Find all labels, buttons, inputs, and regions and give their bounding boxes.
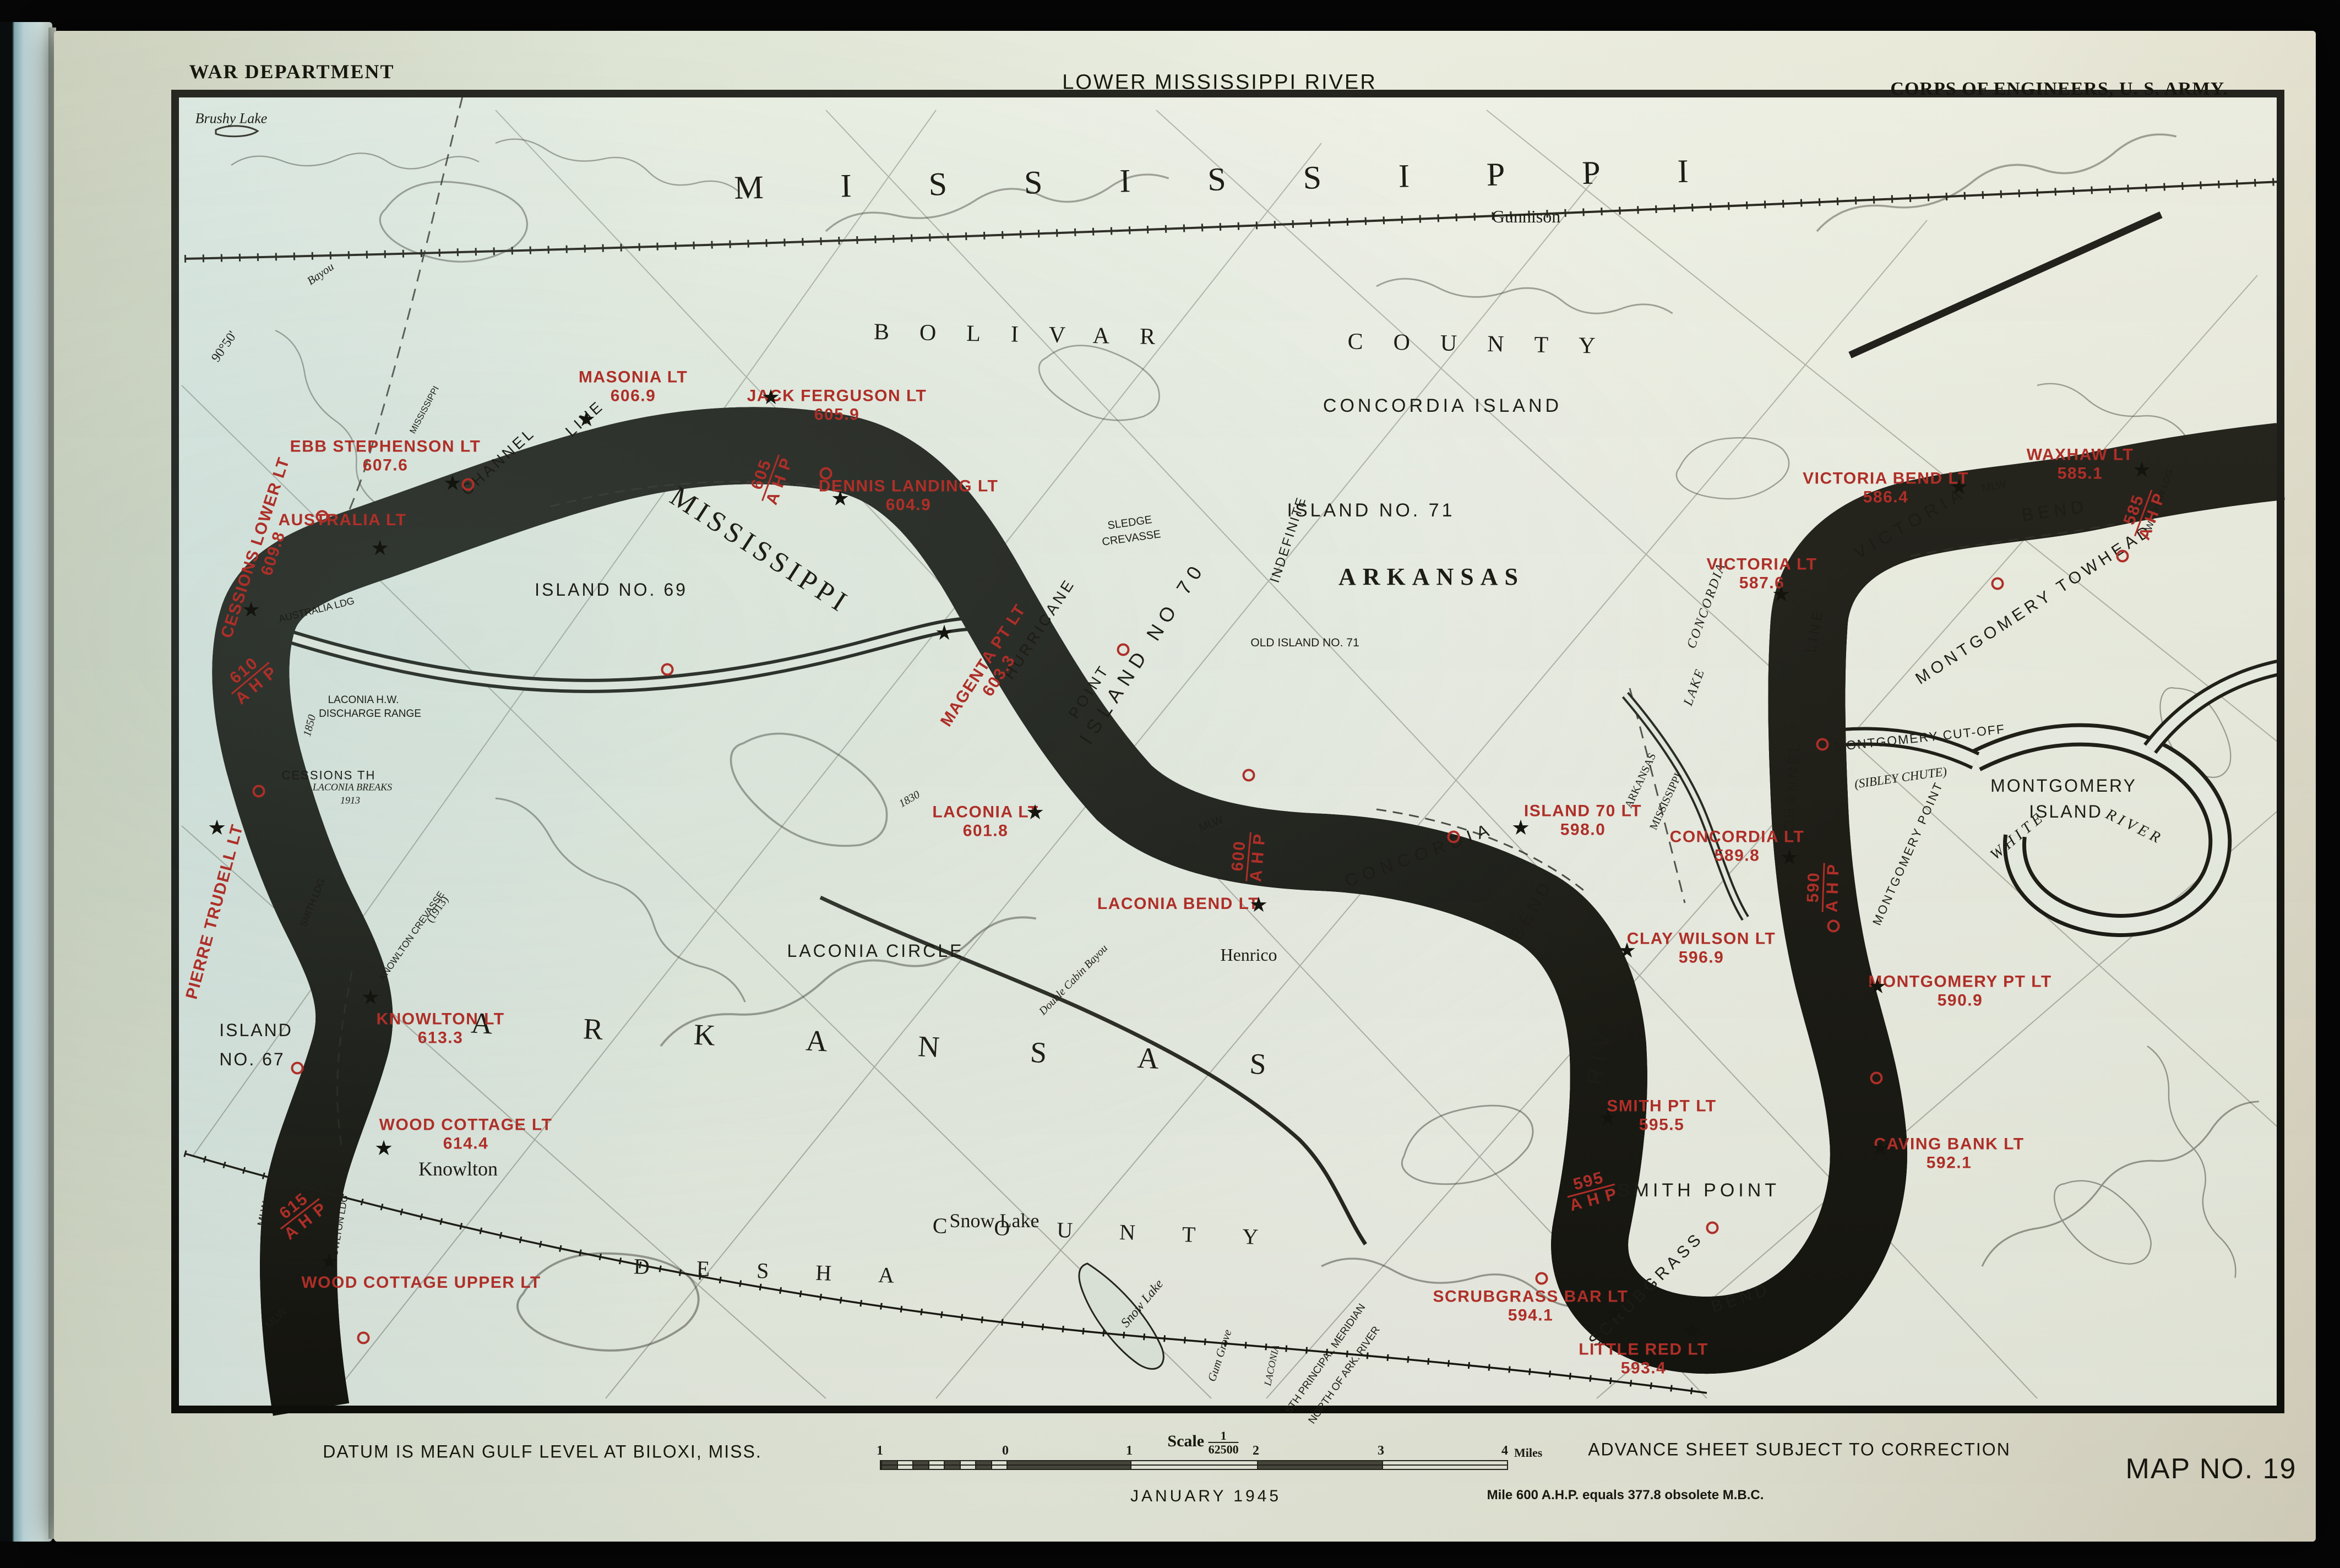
light-mileage: 598.0 bbox=[1524, 820, 1642, 839]
red-circle-marker-9 bbox=[2116, 550, 2129, 563]
red-circle-marker-3 bbox=[661, 663, 674, 676]
label-arkansas-center: ARKANSAS bbox=[1338, 564, 1525, 590]
label-old-island-71: OLD ISLAND NO. 71 bbox=[1250, 637, 1359, 649]
label-year-1850: 1850 bbox=[302, 714, 319, 738]
light-mileage: 594.1 bbox=[1433, 1306, 1629, 1325]
light-label-clay-wilson-lt: CLAY WILSON LT596.9 bbox=[1627, 929, 1776, 966]
label-channel-right: CHANNEL bbox=[1782, 740, 1803, 832]
red-circle-marker-4 bbox=[1117, 644, 1130, 656]
mile-600-ahp: 600A H P bbox=[1228, 831, 1269, 883]
red-circle-marker-1 bbox=[462, 478, 475, 491]
light-star-icon-montgomery-pt-lt: ★ bbox=[1868, 976, 1887, 997]
red-circle-marker-8 bbox=[1991, 578, 2004, 590]
label-laconia-circle: LACONIA CIRCLE bbox=[787, 942, 964, 961]
label-concordia-bend-2: BEND bbox=[1507, 876, 1557, 943]
red-circle-marker-16 bbox=[357, 1332, 370, 1344]
light-label-scrubgrass-bar-lt: SCRUBGRASS BAR LT594.1 bbox=[1433, 1287, 1629, 1324]
light-label-little-red-lt: LITTLE RED LT593.4 bbox=[1579, 1340, 1708, 1377]
mile-590-ahp: 590A H P bbox=[1804, 862, 1843, 912]
red-circle-marker-10 bbox=[1827, 920, 1840, 933]
label-montgomery-point: MONTGOMERY POINT bbox=[1870, 780, 1945, 927]
light-name: WOOD COTTAGE UPPER LT bbox=[301, 1273, 541, 1292]
red-circle-marker-2 bbox=[820, 467, 832, 480]
red-circle-marker-13 bbox=[1536, 1272, 1548, 1285]
light-name: CONCORDIA LT bbox=[1670, 827, 1805, 846]
light-name: KNOWLTON LT bbox=[376, 1010, 504, 1028]
mile-610-ahp: 610A H P bbox=[220, 648, 281, 708]
ahp-suffix: A H P bbox=[1247, 832, 1270, 883]
light-star-icon-laconia-bend-lt: ★ bbox=[1249, 895, 1268, 916]
red-circle-marker-5 bbox=[1243, 769, 1255, 782]
red-circle-marker-0 bbox=[316, 510, 329, 523]
light-label-pierre-trudell-lt: PIERRE TRUDELL LT bbox=[182, 822, 247, 1001]
label-white-river-2: RIVER bbox=[2103, 806, 2166, 848]
label-river-word: RIVER bbox=[1583, 978, 1624, 1087]
light-name: PIERRE TRUDELL LT bbox=[182, 822, 247, 1001]
label-laconia-boundary: LACONIA bbox=[1262, 1344, 1281, 1386]
light-star-icon-island-70-lt: ★ bbox=[1511, 818, 1530, 839]
label-concordia-island: CONCORDIA ISLAND bbox=[1323, 396, 1562, 416]
red-circle-marker-11 bbox=[1870, 1072, 1883, 1085]
light-star-icon-waxhaw-lt: ★ bbox=[2132, 460, 2151, 481]
light-name: MONTGOMERY PT LT bbox=[1868, 972, 2051, 990]
label-bayou: Bayou bbox=[305, 260, 336, 287]
label-mlw-4: MLW bbox=[264, 1306, 290, 1332]
red-circle-marker-15 bbox=[291, 1062, 304, 1075]
label-knowlton-town: Knowlton bbox=[418, 1159, 498, 1180]
light-name: LACONIA BEND LT bbox=[1097, 895, 1259, 913]
label-state-arkansas: ARKANSAS bbox=[470, 1008, 1358, 1085]
light-label-knowlton-lt: KNOWLTON LT613.3 bbox=[376, 1010, 504, 1047]
light-label-victoria-lt: VICTORIA LT587.6 bbox=[1707, 555, 1817, 592]
label-victoria-bend-2: BEND bbox=[2021, 497, 2089, 525]
light-label-australia-lt: AUSTRALIA LT bbox=[279, 511, 407, 530]
light-star-icon-smith-pt-lt: ★ bbox=[1598, 1108, 1617, 1129]
light-star-icon-masonia-lt: ★ bbox=[577, 409, 596, 430]
label-laconia-breaks: LACONIA BREAKS bbox=[313, 782, 392, 793]
ahp-suffix: A H P bbox=[1823, 863, 1843, 913]
label-state-mississippi: MISSISSIPPI bbox=[734, 153, 1766, 205]
label-desha-county: COUNTY bbox=[932, 1214, 1305, 1250]
light-star-icon-concordia-lt: ★ bbox=[1780, 847, 1799, 868]
red-circle-marker-7 bbox=[1816, 738, 1829, 751]
label-concordia-bend-1: CONCORDIA bbox=[1342, 819, 1496, 890]
label-lake-concordia-2: LAKE bbox=[1681, 666, 1708, 707]
light-name: ISLAND 70 LT bbox=[1524, 802, 1642, 820]
light-star-icon-caving-bank-lt: ★ bbox=[1871, 1138, 1890, 1159]
label-smith-ldg: SMITH LDG bbox=[298, 878, 326, 929]
label-montgomery-cutoff: MONTGOMERY CUT-OFF bbox=[1834, 722, 2006, 754]
label-gunnison: Gunnison bbox=[1492, 208, 1560, 226]
light-label-smith-pt-lt: SMITH PT LT595.5 bbox=[1607, 1097, 1716, 1134]
label-bolivar-county: COUNTY bbox=[1347, 330, 1626, 359]
label-graticule: 90°50' bbox=[209, 329, 240, 364]
light-star-icon-scrubgrass-bar-lt: ★ bbox=[1604, 1303, 1623, 1324]
label-year-1830: 1830 bbox=[897, 789, 922, 810]
label-montgomery-towhead: MONTGOMERY TOWHEAD bbox=[1913, 521, 2156, 688]
light-star-icon-victoria-bend-lt: ★ bbox=[1950, 477, 1968, 498]
light-star-icon-magenta-pt-lt: ★ bbox=[935, 623, 954, 644]
light-star-icon-little-red-lt: ★ bbox=[1683, 1320, 1701, 1341]
label-brushy-lake: Brushy Lake bbox=[195, 111, 268, 126]
light-mileage: 614.4 bbox=[379, 1134, 553, 1153]
light-mileage: 596.9 bbox=[1627, 948, 1776, 967]
label-snow-lake-lake: Snow Lake bbox=[1119, 1277, 1167, 1330]
light-name: SCRUBGRASS BAR LT bbox=[1433, 1287, 1629, 1305]
label-mlw-2: MLW bbox=[1981, 479, 2007, 495]
light-label-victoria-bend-lt: VICTORIA BEND LT586.4 bbox=[1803, 469, 1969, 506]
label-sledge: SLEDGE bbox=[1107, 514, 1152, 532]
label-scrubgrass-bend: BEND bbox=[1709, 1281, 1773, 1316]
light-name: SMITH PT LT bbox=[1607, 1097, 1716, 1115]
red-circle-marker-12 bbox=[1706, 1222, 1719, 1234]
light-name: EBB STEPHENSON LT bbox=[290, 437, 481, 455]
light-label-caving-bank-lt: CAVING BANK LT592.1 bbox=[1874, 1135, 2024, 1172]
label-henrico: Henrico bbox=[1220, 946, 1277, 965]
light-star-icon-clay-wilson-lt: ★ bbox=[1618, 940, 1636, 961]
red-circle-marker-6 bbox=[1447, 831, 1460, 843]
light-name: MASONIA LT bbox=[579, 368, 688, 386]
light-label-wood-cottage-upper-lt: WOOD COTTAGE UPPER LT bbox=[301, 1273, 541, 1292]
label-boundary-arkansas: ARKANSAS bbox=[1623, 752, 1659, 810]
map-labels-layer: Brushy LakeMISSISSIPPIBOLIVARCOUNTYGunni… bbox=[0, 0, 2340, 1568]
light-label-laconia-lt: LACONIA LT601.8 bbox=[932, 803, 1038, 840]
light-name: CLAY WILSON LT bbox=[1627, 929, 1776, 948]
light-mileage: 593.4 bbox=[1579, 1359, 1708, 1378]
light-mileage: 595.5 bbox=[1607, 1115, 1716, 1134]
light-star-icon-ebb-stephenson-lt: ★ bbox=[443, 473, 462, 494]
light-mileage: 592.1 bbox=[1874, 1153, 2024, 1172]
light-star-icon-australia-lt: ★ bbox=[371, 538, 389, 559]
light-star-icon-wood-cottage-upper-lt: ★ bbox=[320, 1251, 339, 1272]
label-mlw-1: MLW bbox=[1198, 814, 1225, 834]
light-label-waxhaw-lt: WAXHAW LT585.1 bbox=[2027, 445, 2134, 482]
light-mileage: 590.9 bbox=[1868, 991, 2051, 1010]
label-laconia-hw: LACONIA H.W. bbox=[328, 695, 399, 706]
light-mileage: 606.9 bbox=[579, 386, 688, 405]
light-star-icon-knowlton-lt: ★ bbox=[361, 987, 380, 1008]
label-white-river-1: WHITE bbox=[1987, 808, 2048, 863]
mile-605-ahp: 605A H P bbox=[745, 449, 797, 508]
label-smith-point: SMITH POINT bbox=[1617, 1181, 1780, 1201]
label-island-67-2: NO. 67 bbox=[219, 1050, 285, 1069]
light-name: VICTORIA BEND LT bbox=[1803, 469, 1969, 487]
label-1913: 1913 bbox=[340, 796, 360, 806]
light-label-island-70-lt: ISLAND 70 LT598.0 bbox=[1524, 802, 1642, 839]
photo-canvas: WAR DEPARTMENT LOWER MISSISSIPPI RIVER C… bbox=[0, 0, 2340, 1568]
light-star-icon-cessions-lower-lt: ★ bbox=[242, 600, 260, 620]
label-island-71: ISLAND NO. 71 bbox=[1287, 501, 1455, 521]
light-name: LITTLE RED LT bbox=[1579, 1340, 1708, 1358]
label-desha: DESHA bbox=[633, 1255, 941, 1288]
label-stateline-small: MISSISSIPPI bbox=[409, 385, 441, 435]
light-mileage: 585.1 bbox=[2027, 464, 2134, 483]
light-star-icon-jack-ferguson-lt: ★ bbox=[761, 387, 780, 408]
light-mileage: 601.8 bbox=[932, 821, 1038, 840]
light-label-laconia-bend-lt: LACONIA BEND LT bbox=[1097, 895, 1259, 913]
label-boundary-mississippi: MISSISSIPPI bbox=[1648, 771, 1684, 832]
light-name: VICTORIA LT bbox=[1707, 555, 1817, 573]
light-name: LACONIA LT bbox=[932, 803, 1038, 821]
light-star-icon-laconia-lt: ★ bbox=[1026, 802, 1044, 823]
label-island-69: ISLAND NO. 69 bbox=[535, 581, 688, 600]
label-bolivar: BOLIVAR bbox=[874, 320, 1186, 350]
light-star-icon-dennis-landing-lt: ★ bbox=[831, 488, 850, 509]
light-mileage: 613.3 bbox=[376, 1028, 504, 1047]
light-name: WAXHAW LT bbox=[2027, 445, 2134, 464]
label-gum-grove: Gum Grove bbox=[1205, 1328, 1233, 1383]
light-label-wood-cottage-lt: WOOD COTTAGE LT614.4 bbox=[379, 1115, 553, 1152]
red-circle-marker-14 bbox=[253, 785, 265, 798]
light-name: AUSTRALIA LT bbox=[279, 511, 407, 529]
light-star-icon-wood-cottage-lt: ★ bbox=[374, 1138, 393, 1159]
light-name: CAVING BANK LT bbox=[1874, 1135, 2024, 1153]
light-mileage: 587.6 bbox=[1707, 574, 1817, 592]
label-island-70: ISLAND NO 70 bbox=[1075, 557, 1209, 748]
label-island-67-1: ISLAND bbox=[219, 1021, 293, 1040]
light-star-icon-pierre-trudell-lt: ★ bbox=[208, 818, 226, 839]
label-australia-ldg: AUSTRALIA LDG bbox=[277, 596, 355, 624]
label-double-cabin-bayou: Double Cabin Bayou bbox=[1037, 943, 1110, 1017]
mile-615-ahp: 615A H P bbox=[269, 1184, 331, 1244]
label-discharge-range: DISCHARGE RANGE bbox=[319, 709, 421, 720]
light-name: WOOD COTTAGE LT bbox=[379, 1115, 553, 1134]
light-star-icon-victoria-lt: ★ bbox=[1772, 584, 1791, 605]
light-mileage: 586.4 bbox=[1803, 488, 1969, 507]
light-label-ebb-stephenson-lt: EBB STEPHENSON LT607.6 bbox=[290, 437, 481, 474]
label-line-right: LINE bbox=[1803, 607, 1826, 654]
light-label-masonia-lt: MASONIA LT606.9 bbox=[579, 368, 688, 405]
label-montgomery-island-1: MONTGOMERY bbox=[1990, 777, 2137, 796]
mile-number: 590 bbox=[1804, 862, 1825, 912]
label-cessions-th: CESSIONS TH bbox=[282, 769, 376, 781]
mile-595-ahp: 595A H P bbox=[1563, 1167, 1619, 1215]
light-label-montgomery-pt-lt: MONTGOMERY PT LT590.9 bbox=[1868, 972, 2051, 1009]
